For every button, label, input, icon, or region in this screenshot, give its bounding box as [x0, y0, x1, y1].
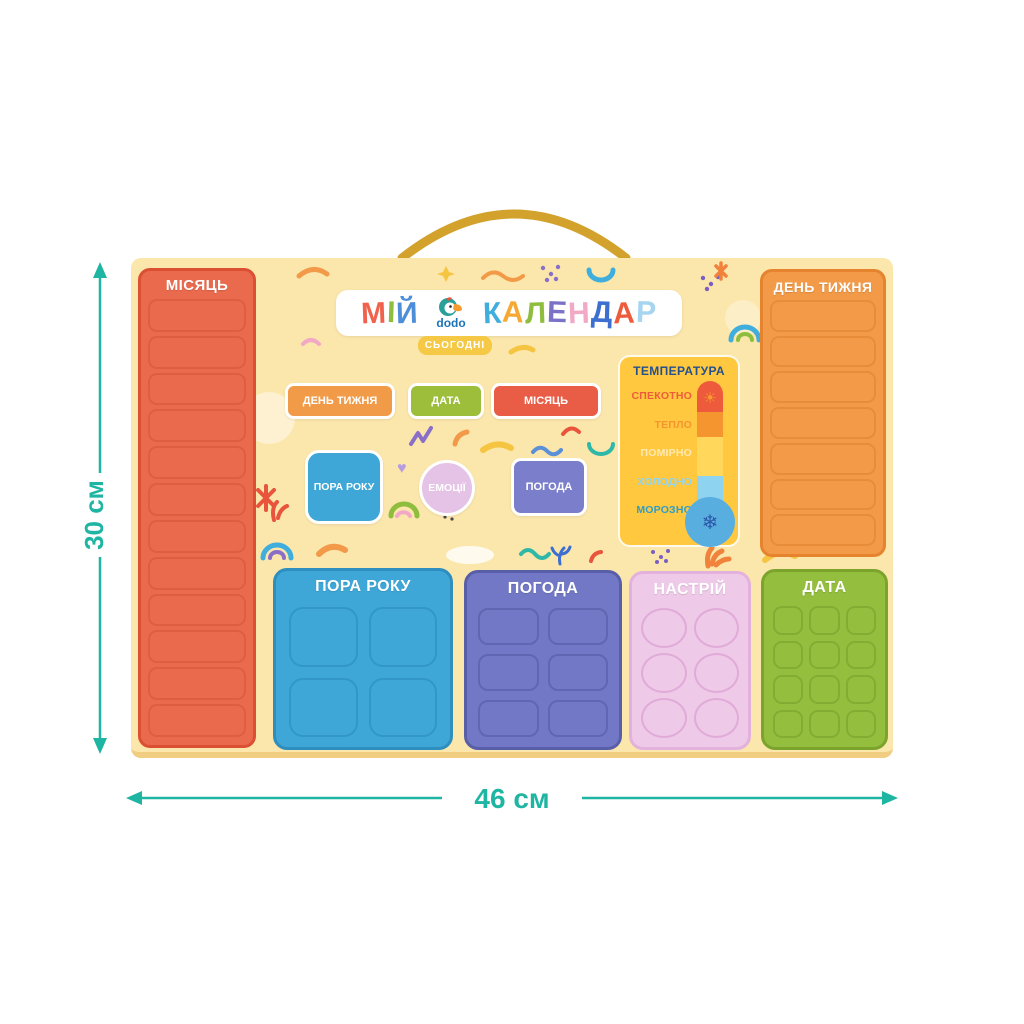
- temperature-levels: СПЕКОТНОТЕПЛОПОМІРНОХОЛОДНОМОРОЗНО: [626, 390, 692, 516]
- weather-slot: [478, 654, 539, 691]
- date-slot: [773, 710, 803, 739]
- panel-date-slots: [771, 604, 878, 739]
- title-letter: Р: [635, 296, 657, 331]
- temperature-title: ТЕМПЕРАТУРА: [620, 364, 738, 378]
- month-slot: [148, 409, 246, 442]
- panel-weekday: ДЕНЬ ТИЖНЯ: [760, 269, 886, 557]
- panel-season-title: ПОРА РОКУ: [283, 575, 443, 599]
- panel-month-slots: [148, 299, 246, 737]
- title-letter: Й: [396, 297, 420, 332]
- panel-weather-title: ПОГОДА: [474, 577, 612, 601]
- sun-icon: ☀: [697, 384, 723, 412]
- title-letter: М: [361, 297, 388, 332]
- season-slot: [369, 607, 438, 667]
- weekday-slot: [770, 407, 876, 439]
- month-slot: [148, 667, 246, 700]
- season-slot: [289, 607, 358, 667]
- card-weather: ПОГОДА: [511, 458, 587, 516]
- temperature-level-label: ТЕПЛО: [655, 419, 693, 431]
- date-slot: [809, 606, 839, 635]
- weather-slot: [548, 608, 609, 645]
- card-month: МІСЯЦЬ: [491, 383, 601, 419]
- thermometer-segment-mild: [697, 437, 723, 476]
- month-slot: [148, 520, 246, 553]
- panel-weather: ПОГОДА: [464, 570, 622, 750]
- title-letter: К: [482, 297, 502, 332]
- date-slot: [846, 641, 876, 670]
- weekday-slot: [770, 336, 876, 368]
- dimension-label-width: 46 см: [442, 781, 582, 817]
- card-date: ДАТА: [408, 383, 484, 419]
- mood-slot: [641, 653, 687, 693]
- panel-mood-title: НАСТРІЙ: [639, 578, 741, 602]
- mood-slot: [694, 608, 740, 648]
- dimension-label-height: 30 см: [79, 473, 109, 557]
- panel-date: ДАТА: [761, 569, 888, 750]
- panel-mood: НАСТРІЙ: [629, 571, 751, 750]
- date-slot: [846, 710, 876, 739]
- month-slot: [148, 446, 246, 479]
- weather-slot: [478, 608, 539, 645]
- title-word-my: МІЙ: [361, 296, 419, 330]
- weekday-slot: [770, 300, 876, 332]
- panel-month-title: МІСЯЦЬ: [148, 275, 246, 297]
- weekday-slot: [770, 371, 876, 403]
- title-letter: Н: [568, 297, 592, 332]
- weather-slot: [548, 654, 609, 691]
- panel-season: ПОРА РОКУ: [273, 568, 453, 750]
- title-word-calendar: КАЛЕНДАР: [483, 296, 657, 330]
- hanging-rope: [378, 188, 650, 266]
- weekday-slot: [770, 514, 876, 546]
- card-emotions: ЕМОЦІЇ: [419, 460, 475, 516]
- panel-weekday-title: ДЕНЬ ТИЖНЯ: [770, 276, 876, 298]
- title-letter: Д: [590, 296, 614, 331]
- panel-month: МІСЯЦЬ: [138, 268, 256, 748]
- month-slot: [148, 373, 246, 406]
- title-letter: А: [502, 296, 526, 331]
- date-slot: [846, 675, 876, 704]
- weekday-slot: [770, 443, 876, 475]
- panel-weather-slots: [474, 605, 612, 739]
- brand-logo: dodo: [427, 296, 475, 330]
- title-letter: Е: [547, 296, 569, 331]
- title-letter: Л: [524, 297, 547, 332]
- calendar-board: ♥ МІСЯЦЬ ДЕНЬ ТИ: [131, 258, 893, 758]
- today-badge: СЬОГОДНІ: [418, 336, 492, 355]
- month-slot: [148, 483, 246, 516]
- brand-logo-text: dodo: [436, 316, 465, 330]
- temperature-level-label: СПЕКОТНО: [632, 390, 692, 402]
- date-slot: [809, 641, 839, 670]
- month-slot: [148, 299, 246, 332]
- month-slot: [148, 336, 246, 369]
- panel-season-slots: [283, 603, 443, 739]
- panel-date-title: ДАТА: [771, 576, 878, 600]
- thermometer-segment-warm: [697, 412, 723, 437]
- season-slot: [289, 678, 358, 738]
- temperature-card: ТЕМПЕРАТУРА СПЕКОТНОТЕПЛОПОМІРНОХОЛОДНОМ…: [618, 355, 740, 547]
- date-slot: [846, 606, 876, 635]
- weather-slot: [478, 700, 539, 737]
- snowflake-icon: ❄: [685, 497, 735, 547]
- date-slot: [809, 710, 839, 739]
- temperature-level-label: ХОЛОДНО: [637, 476, 692, 488]
- date-slot: [809, 675, 839, 704]
- mood-slot: [641, 608, 687, 648]
- mood-slot: [641, 698, 687, 738]
- month-slot: [148, 557, 246, 590]
- month-slot: [148, 704, 246, 737]
- mood-slot: [694, 653, 740, 693]
- toucan-icon: [438, 296, 464, 318]
- weekday-slot: [770, 479, 876, 511]
- mood-slot: [694, 698, 740, 738]
- panel-mood-slots: [639, 606, 741, 739]
- svg-text:♥: ♥: [397, 460, 407, 477]
- month-slot: [148, 630, 246, 663]
- card-season: ПОРА РОКУ: [305, 450, 383, 524]
- thermometer: ☀ ❄: [697, 381, 723, 547]
- temperature-level-label: МОРОЗНО: [636, 504, 692, 516]
- season-slot: [369, 678, 438, 738]
- date-slot: [773, 675, 803, 704]
- date-slot: [773, 641, 803, 670]
- weather-slot: [548, 700, 609, 737]
- date-slot: [773, 606, 803, 635]
- month-slot: [148, 594, 246, 627]
- product-photo-stage: ♥ МІСЯЦЬ ДЕНЬ ТИ: [0, 0, 1024, 1024]
- card-weekday: ДЕНЬ ТИЖНЯ: [285, 383, 395, 419]
- panel-weekday-slots: [770, 300, 876, 546]
- title-letter: А: [613, 297, 637, 332]
- temperature-level-label: ПОМІРНО: [640, 447, 692, 459]
- title-banner: МІЙ dodo КАЛЕНДАР: [336, 290, 682, 336]
